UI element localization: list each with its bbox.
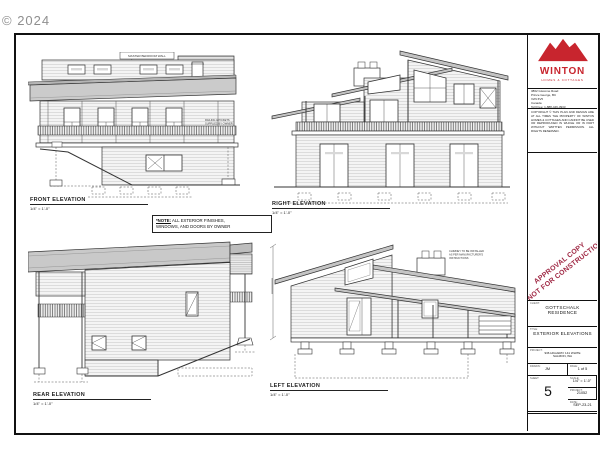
client-name: GOTTSCHALK RESIDENCE bbox=[528, 305, 597, 316]
company-name: WINTON bbox=[528, 67, 597, 77]
railing-note-line1: RAILING & PICKETS bbox=[205, 118, 230, 122]
scale-field: SCALE: 1/4" = 1'-0" bbox=[568, 376, 597, 388]
drawn-field: DRAWN: JM bbox=[528, 364, 568, 376]
dimension-line bbox=[270, 244, 276, 340]
date-value: SEP-23-21 bbox=[568, 404, 597, 408]
company-tagline: HOMES & COTTAGES bbox=[528, 78, 597, 82]
left-wing-wall bbox=[36, 272, 85, 296]
note-line2: WINDOWS, AND DOORS BY OWNER bbox=[156, 224, 230, 229]
master-bedroom-callout: MASTER BEDROOM WALL bbox=[128, 54, 166, 58]
front-elevation-drawing: MASTER BEDROOM WALL bbox=[28, 52, 260, 202]
company-address: 3862 Giscome Road Prince George, BC V2N … bbox=[528, 89, 597, 109]
right-elevation-label: RIGHT ELEVATION 1/4" = 1'-0" bbox=[272, 201, 390, 215]
porch-roof bbox=[230, 243, 252, 254]
client-section: CLIENT: GOTTSCHALK RESIDENCE bbox=[528, 301, 597, 327]
left-deck-railing bbox=[38, 304, 85, 317]
page-value: 1 of 5 bbox=[568, 368, 597, 372]
approval-stamp: APPROVAL COPY NOT FOR CONSTRUCTION bbox=[528, 235, 597, 301]
page-field: PAGE: 1 of 5 bbox=[568, 364, 597, 376]
front-elevation-label: FRONT ELEVATION 1/4" = 1'-0" bbox=[30, 197, 148, 211]
deck-railing bbox=[296, 122, 502, 131]
railing-note-line2: SUPPLIED BY OWNER bbox=[205, 121, 233, 125]
chimney bbox=[417, 258, 445, 275]
general-note-box: *NOTE: ALL EXTERIOR FINISHES, WINDOWS, A… bbox=[152, 215, 272, 233]
drawn-value: JM bbox=[528, 368, 567, 372]
title-block-fields: DRAWN: JM PAGE: 1 of 5 SCALE: 1/4" = 1'-… bbox=[528, 364, 597, 414]
side-window bbox=[422, 300, 438, 318]
basement-wall bbox=[85, 360, 158, 376]
project-field: PROJECT: 21052 bbox=[568, 388, 597, 400]
rim-band bbox=[291, 338, 515, 342]
project-value: 21052 bbox=[568, 392, 596, 396]
right-elevation-scale: 1/4" = 1'-0" bbox=[272, 210, 390, 215]
title-block: WINTON HOMES & COTTAGES 3862 Giscome Roa… bbox=[527, 35, 597, 431]
rear-elevation-drawing bbox=[28, 240, 260, 400]
footings bbox=[298, 342, 514, 354]
rear-elevation-scale: 1/4" = 1'-0" bbox=[33, 401, 151, 406]
sheet-number-field: SHEET: 5 bbox=[528, 376, 568, 412]
front-elevation-scale: 1/4" = 1'-0" bbox=[30, 206, 148, 211]
main-wall bbox=[85, 263, 230, 361]
lower-doors bbox=[320, 144, 478, 187]
left-elevation-title: LEFT ELEVATION bbox=[270, 383, 388, 389]
note-prefix: *NOTE: bbox=[156, 218, 171, 223]
project-address-section: PROJECT: 936 HIGHWAY 141 WHITE SALMON, W… bbox=[528, 348, 597, 364]
note-line1: ALL EXTERIOR FINISHES, bbox=[172, 218, 225, 223]
right-elevation-title: RIGHT ELEVATION bbox=[272, 201, 390, 207]
blank-section bbox=[528, 153, 597, 235]
right-elevation-drawing bbox=[268, 44, 516, 209]
plan-sheet-page: © 2024 MASTER BEDROOM WALL bbox=[0, 0, 600, 450]
mountain-logo-icon bbox=[536, 38, 590, 62]
footing-dashed-lines bbox=[295, 354, 507, 378]
rear-elevation-title: REAR ELEVATION bbox=[33, 392, 151, 398]
scale-value: 1/4" = 1'-0" bbox=[568, 380, 596, 384]
left-elevation-label: LEFT ELEVATION 1/4" = 1'-0" bbox=[270, 383, 388, 397]
project-address-line2: SALMON, WA bbox=[528, 355, 597, 359]
bottom-blank-section bbox=[528, 414, 597, 431]
chimney-note-line3: INSTRUCTIONS bbox=[449, 256, 469, 260]
left-elevation-drawing: CHIMNEY TO BE INSTALLED AS PER MANUFACTU… bbox=[265, 238, 517, 390]
chimney-note-line1: CHIMNEY TO BE INSTALLED bbox=[449, 249, 484, 253]
copyright-disclaimer: COPYRIGHT © THIS PLAN AND DESIGN ARE AT … bbox=[528, 109, 597, 153]
rear-elevation-label: REAR ELEVATION 1/4" = 1'-0" bbox=[33, 392, 151, 406]
left-elevation-scale: 1/4" = 1'-0" bbox=[270, 392, 388, 397]
sheet-title: EXTERIOR ELEVATIONS bbox=[528, 331, 597, 337]
sheet-title-section: TITLE: EXTERIOR ELEVATIONS bbox=[528, 327, 597, 348]
date-field: DATE: SEP-23-21 bbox=[568, 400, 597, 412]
front-elevation-title: FRONT ELEVATION bbox=[30, 197, 148, 203]
sheet-number: 5 bbox=[528, 380, 568, 402]
deck-railing bbox=[38, 126, 236, 135]
company-logo: WINTON HOMES & COTTAGES bbox=[528, 35, 597, 89]
porch-railing bbox=[479, 316, 511, 334]
porch-railing bbox=[230, 292, 252, 302]
copyright-watermark: © 2024 bbox=[2, 13, 50, 28]
stamp-line2: NOT FOR CONSTRUCTION bbox=[528, 239, 597, 301]
chimney-note-line2: AS PER MANUFACTURER'S bbox=[449, 252, 483, 256]
